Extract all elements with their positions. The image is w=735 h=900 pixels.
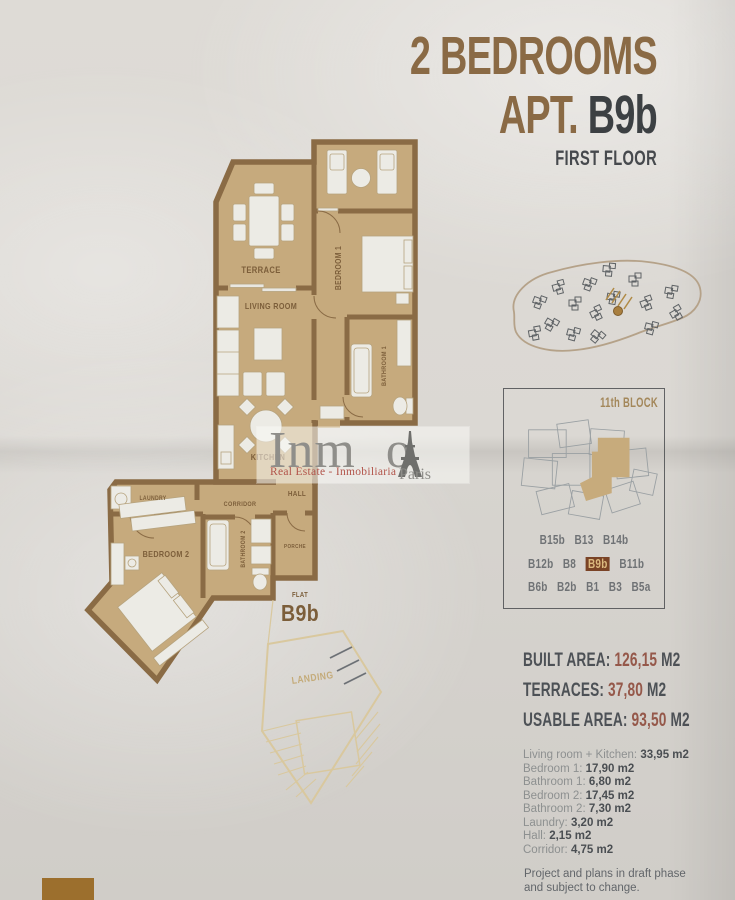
terraces-value: 37,80 <box>608 680 643 701</box>
site-buildings <box>528 263 685 346</box>
disclaimer: Project and plans in draft phase and sub… <box>524 868 686 895</box>
block-box-title: 11th BLOCK <box>554 395 658 410</box>
detail-value: 17,45 m2 <box>586 790 635 802</box>
label-corridor: CORRIDOR <box>224 502 257 508</box>
site-boundary <box>513 261 700 351</box>
block-code-row: B6b B2b B1 B3 B5a <box>525 576 643 600</box>
detail-value: 2,15 m2 <box>549 830 591 842</box>
detail-value: 4,75 m2 <box>571 844 613 856</box>
label-landing: LANDING <box>291 670 334 687</box>
area-summary: BUILT AREA: 126,15 M2 TERRACES: 37,80 M2… <box>523 650 735 740</box>
detail-label: Laundry: <box>523 817 568 829</box>
floorplan-page: { "header": { "line1": "2 BEDROOMS", "ap… <box>0 0 735 900</box>
detail-label: Hall: <box>523 830 546 842</box>
list-item: Laundry: 3,20 m2 <box>523 817 689 831</box>
site-highlight-dot <box>614 307 623 316</box>
watermark-subtitle: Real Estate - Inmobiliaria <box>270 466 396 478</box>
usable-area-row: USABLE AREA: 93,50 M2 <box>523 710 690 732</box>
usable-area-label: USABLE AREA: <box>523 710 628 731</box>
detail-label: Bathroom 1: <box>523 776 586 788</box>
code-b2b: B2b <box>557 580 577 594</box>
watermark: Inmo Real Estate - Inmobiliaria Paris <box>257 427 469 483</box>
label-bathroom-2: BATHROOM 2 <box>241 530 247 567</box>
built-area-label: BUILT AREA: <box>523 650 610 671</box>
list-item: Corridor: 4,75 m2 <box>523 844 689 858</box>
label-bathroom-1: BATHROOM 1 <box>382 346 388 386</box>
page-title: 2 BEDROOMS <box>410 30 657 83</box>
list-item: Hall: 2,15 m2 <box>523 830 689 844</box>
gold-swatch <box>42 878 94 900</box>
header: 2 BEDROOMS APT. B9b FIRST FLOOR <box>304 30 657 169</box>
code-b5a: B5a <box>631 580 650 594</box>
site-map <box>500 240 730 380</box>
code-b8: B8 <box>563 557 576 571</box>
detail-value: 17,90 m2 <box>586 763 635 775</box>
list-item: Bathroom 2: 7,30 m2 <box>523 803 689 817</box>
detail-label: Living room + Kitchen: <box>523 749 637 761</box>
code-b13: B13 <box>574 533 593 547</box>
detail-value: 33,95 m2 <box>640 749 689 761</box>
flat-tag: FLAT B9b <box>281 592 319 627</box>
block-code-grid: B15b B13 B14b B12b B8 B9b B11b B6b B2b B… <box>510 529 658 600</box>
terraces-label: TERRACES: <box>523 680 604 701</box>
label-bedroom-2: BEDROOM 2 <box>143 549 190 559</box>
detail-value: 6,80 m2 <box>589 776 631 788</box>
block-highlight-unit <box>580 438 629 501</box>
detail-label: Bedroom 2: <box>523 790 582 802</box>
apartment-title: APT. B9b <box>410 89 657 142</box>
built-area-unit: M2 <box>661 650 680 671</box>
flat-tag-small: FLAT <box>292 592 308 600</box>
code-b3: B3 <box>609 580 622 594</box>
usable-area-unit: M2 <box>670 710 689 731</box>
floor-subtitle: FIRST FLOOR <box>410 149 657 170</box>
disclaimer-line1: Project and plans in draft phase <box>524 868 686 882</box>
block-plan-thumbnail <box>510 412 658 529</box>
landing-outline: LANDING <box>262 600 381 803</box>
list-item: Bedroom 2: 17,45 m2 <box>523 790 689 804</box>
list-item: Bathroom 1: 6,80 m2 <box>523 776 689 790</box>
list-item: Living room + Kitchen: 33,95 m2 <box>523 749 689 763</box>
landing-hatch-marks <box>330 647 366 684</box>
usable-area-value: 93,50 <box>632 710 667 731</box>
code-b12b: B12b <box>528 557 553 571</box>
code-b14b: B14b <box>603 533 628 547</box>
label-terrace: TERRACE <box>241 264 280 275</box>
terraces-area-row: TERRACES: 37,80 M2 <box>523 680 690 702</box>
label-living-room: LIVING ROOM <box>245 301 297 311</box>
watermark-city: Paris <box>399 466 431 484</box>
apt-prefix: APT. <box>499 85 578 145</box>
built-area-value: 126,15 <box>614 650 657 671</box>
label-porch: PORCHE <box>284 544 306 550</box>
disclaimer-line2: and subject to change. <box>524 882 686 896</box>
detail-label: Corridor: <box>523 844 568 856</box>
list-item: Bedroom 1: 17,90 m2 <box>523 763 689 777</box>
detail-label: Bathroom 2: <box>523 803 586 815</box>
code-b9b-highlighted: B9b <box>586 557 610 571</box>
built-area-row: BUILT AREA: 126,15 M2 <box>523 650 690 672</box>
label-hall: HALL <box>288 491 307 499</box>
detail-value: 3,20 m2 <box>571 817 613 829</box>
label-bedroom-1: BEDROOM 1 <box>333 246 343 290</box>
detail-label: Bedroom 1: <box>523 763 582 775</box>
detail-value: 7,30 m2 <box>589 803 631 815</box>
block-code-row: B15b B13 B14b <box>525 529 643 553</box>
code-b11b: B11b <box>619 557 644 571</box>
block-box: 11th BLOCK B15b B13 B14b B12b B8 B9b B11… <box>503 388 665 609</box>
terraces-unit: M2 <box>647 680 666 701</box>
block-code-row: B12b B8 B9b B11b <box>525 553 643 577</box>
code-b1: B1 <box>586 580 599 594</box>
room-area-list: Living room + Kitchen: 33,95 m2 Bedroom … <box>523 749 689 857</box>
label-laundry: LAUNDRY <box>139 496 166 502</box>
flat-tag-code: B9b <box>281 601 319 627</box>
code-b15b: B15b <box>540 533 565 547</box>
apt-code: B9b <box>588 85 657 145</box>
code-b6b: B6b <box>528 580 548 594</box>
